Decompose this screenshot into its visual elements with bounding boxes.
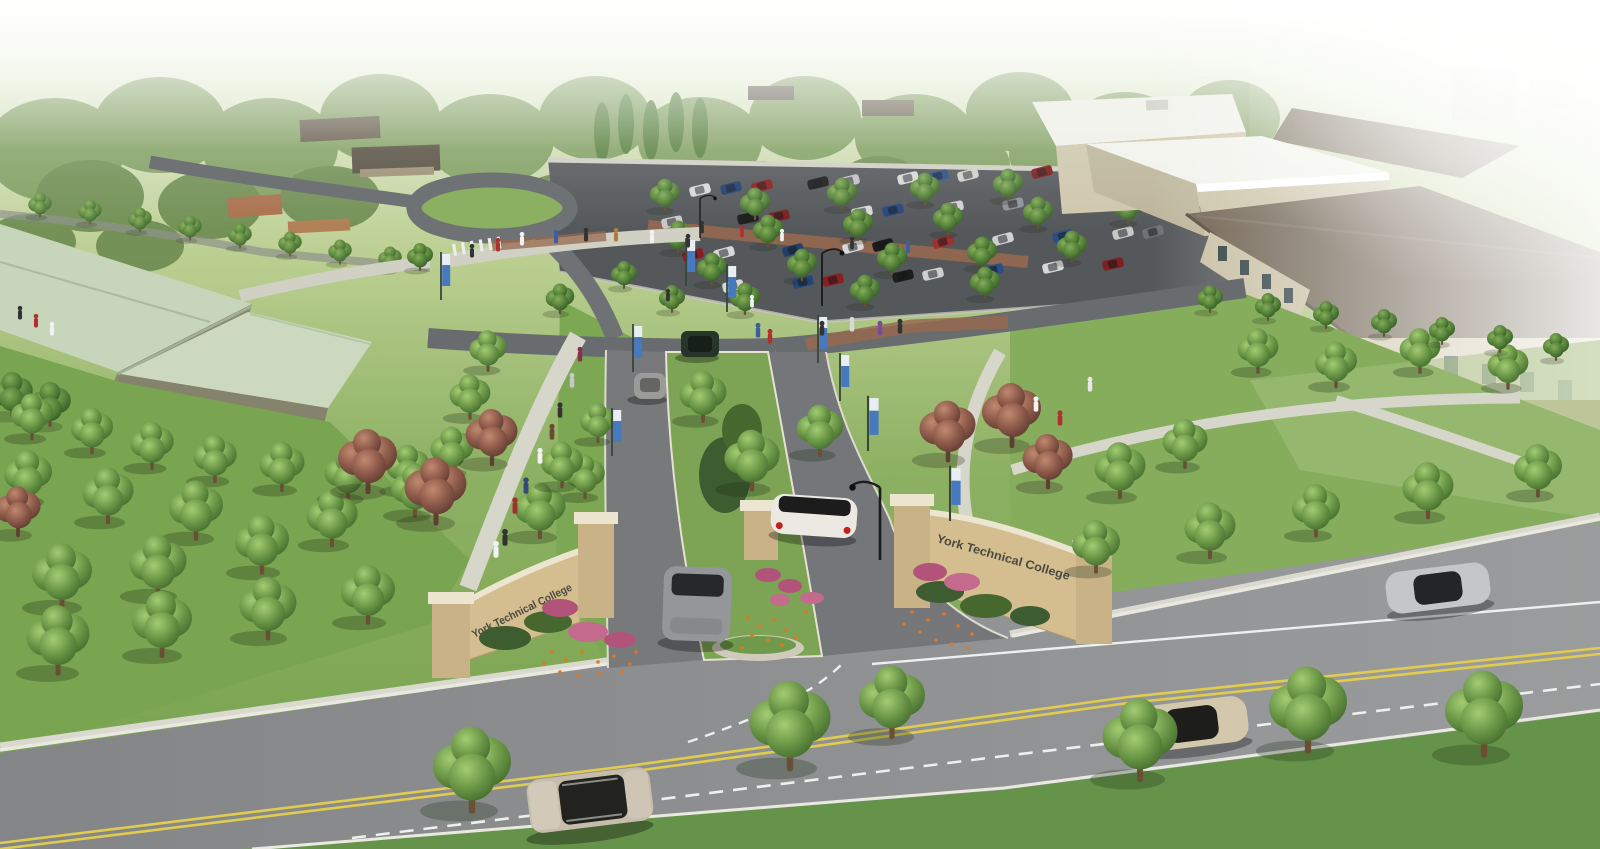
suv-dark-green: [675, 331, 719, 363]
rendering-canvas: York Technical College York Technica: [0, 0, 1600, 849]
haze-corner: [1250, 0, 1600, 280]
convertible-white: [768, 493, 859, 549]
suv-gray-exiting: [657, 566, 736, 654]
sign-left-pillar-b: [574, 512, 618, 618]
sign-left-pillar-a: [428, 592, 474, 678]
campus-rendering: York Technical College York Technica: [0, 0, 1600, 849]
